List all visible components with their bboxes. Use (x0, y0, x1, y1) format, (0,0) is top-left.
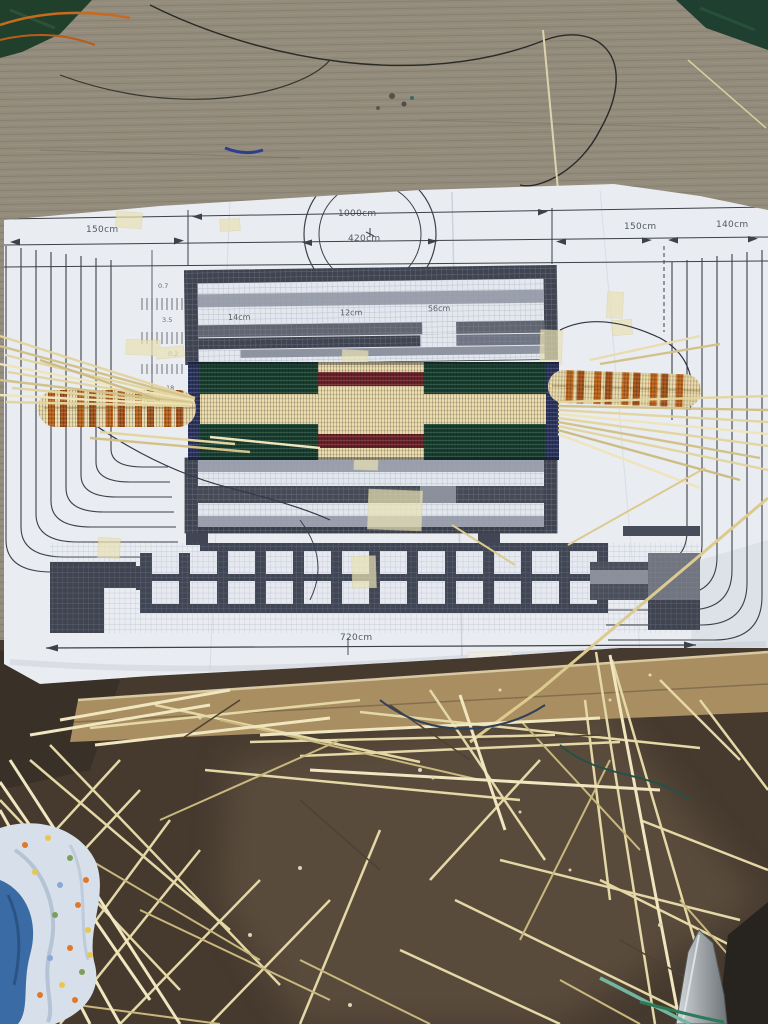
chart-label-56cm: 56cm (428, 304, 451, 313)
margin-value-0: 0.7 (158, 282, 168, 290)
measurement-right-150cm: 150cm (624, 222, 656, 232)
measurement-420cm: 420cm (348, 234, 380, 244)
chart-label-12cm: 12cm (340, 308, 363, 317)
measurement-left-150cm: 150cm (86, 225, 118, 235)
upper-weave-chart: 14cm 12cm 56cm (184, 265, 557, 364)
measurement-1000cm: 1000cm (338, 209, 376, 219)
measurement-140cm: 140cm (716, 220, 748, 230)
band-middle-section (188, 362, 559, 460)
measurement-720cm: 720cm (340, 633, 372, 643)
photo-svg: 150cm 1000cm 420cm 150cm 140cm (0, 0, 768, 1024)
photo-canvas: 150cm 1000cm 420cm 150cm 140cm (0, 0, 768, 1024)
margin-value-1: 3.5 (162, 316, 172, 324)
chart-label-14cm: 14cm (228, 313, 251, 322)
